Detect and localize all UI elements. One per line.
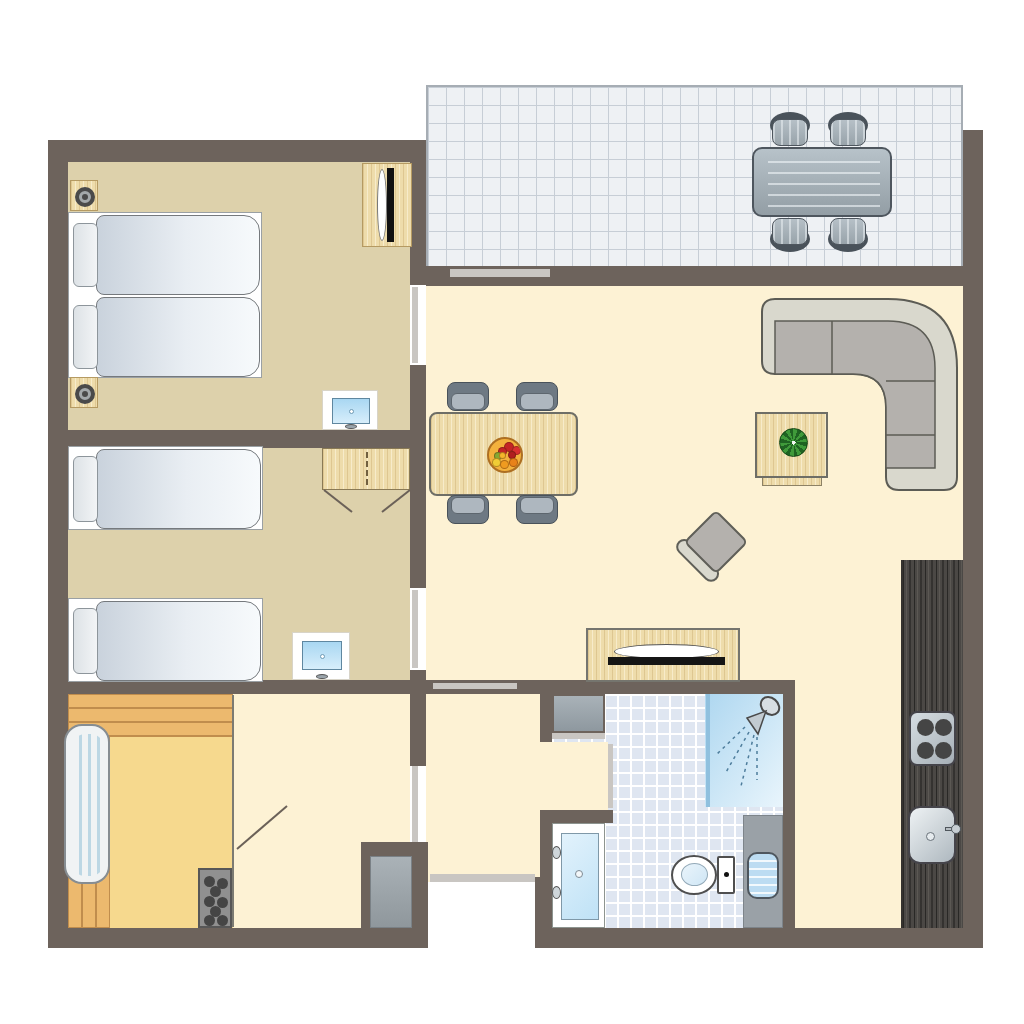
wall-bath-left-upper xyxy=(540,694,552,742)
bathroom-doorway-floor xyxy=(540,742,608,810)
faucet-icon xyxy=(951,824,961,834)
duvet xyxy=(96,297,260,377)
burner-icon xyxy=(917,719,934,736)
fruit xyxy=(499,452,506,459)
chair-seat xyxy=(520,497,554,514)
lamp-icon xyxy=(75,187,95,207)
wall-corridor-upper xyxy=(410,162,426,285)
armchair xyxy=(678,504,754,580)
double-bed xyxy=(68,212,262,378)
door-bedroom-2 xyxy=(412,590,418,668)
nightstand-top xyxy=(70,180,98,211)
dressing-table-mirror xyxy=(362,163,412,247)
burner-icon xyxy=(935,719,952,736)
heater-stone xyxy=(210,886,221,897)
radiator-fins xyxy=(747,852,779,899)
wall-right xyxy=(963,130,983,948)
chair-seat xyxy=(451,393,485,410)
drain-icon xyxy=(575,870,583,878)
terrace-table xyxy=(752,147,892,217)
stove xyxy=(909,711,956,766)
utility-sill xyxy=(552,733,605,739)
duvet xyxy=(96,215,260,295)
tap-icon xyxy=(552,886,561,899)
terrace-chair-4 xyxy=(826,216,870,252)
heater-stone xyxy=(204,915,215,926)
sauna-lounger xyxy=(64,724,110,884)
wall-hall-band xyxy=(48,680,795,694)
tv-screen xyxy=(332,398,370,424)
nightstand-bottom xyxy=(70,377,98,408)
burner-icon xyxy=(935,742,952,759)
terrace-chair-3 xyxy=(768,216,812,252)
wardrobe xyxy=(322,448,410,490)
terrace-chair-2 xyxy=(826,112,870,148)
dining-chair-4 xyxy=(516,495,561,527)
pillow xyxy=(73,608,98,674)
dining-chair-1 xyxy=(447,382,492,414)
entrance-mat xyxy=(370,856,412,928)
chair-seat xyxy=(772,119,808,146)
lounger-slats xyxy=(73,734,103,876)
tap-icon xyxy=(552,846,561,859)
chair-seat xyxy=(451,497,485,514)
dining-chair-3 xyxy=(447,495,492,527)
hall-window-sill xyxy=(433,683,517,689)
toilet xyxy=(671,853,739,897)
shower xyxy=(705,694,783,807)
utility-cabinet xyxy=(552,694,605,733)
lamp-icon xyxy=(75,384,95,404)
chair-seat xyxy=(830,119,866,146)
tv-icon xyxy=(608,657,725,665)
tv-sideboard xyxy=(586,628,740,682)
entrance-threshold xyxy=(430,874,535,882)
wall-bottom-right xyxy=(535,928,983,948)
flush-button-icon xyxy=(724,872,729,877)
tv-bedroom-1 xyxy=(322,390,378,430)
terrace-chair-1 xyxy=(768,112,812,148)
drain-icon xyxy=(926,832,935,841)
mirror-icon xyxy=(387,168,394,242)
tv-stand-foot xyxy=(316,674,328,679)
tv-bedroom-2 xyxy=(292,632,350,680)
chair-seat xyxy=(520,393,554,410)
door-bathroom xyxy=(608,744,613,808)
wall-entrance-right xyxy=(535,877,552,928)
fruit xyxy=(500,460,509,469)
fruit xyxy=(509,458,518,467)
chair-seat xyxy=(830,218,866,245)
fruit-bowl xyxy=(487,437,523,473)
door-bedroom-1 xyxy=(412,287,418,363)
wall-bath-inner-corner xyxy=(547,810,613,823)
wardrobe-divider xyxy=(366,452,368,485)
pillow xyxy=(73,456,98,522)
kitchen-sink xyxy=(908,806,956,864)
chair-seat xyxy=(772,218,808,245)
bathroom-vanity xyxy=(552,823,605,928)
entrance-door-opening xyxy=(428,882,535,948)
bathroom-radiator xyxy=(743,815,783,928)
table-slats xyxy=(768,161,880,207)
wall-top xyxy=(48,140,426,162)
single-bed-2 xyxy=(68,598,263,682)
floor-plan xyxy=(0,0,1024,1024)
single-bed-1 xyxy=(68,446,263,530)
coffee-table xyxy=(755,412,828,478)
heater-stone xyxy=(217,915,228,926)
toilet-seat xyxy=(681,863,708,886)
door-anteroom xyxy=(412,766,418,842)
dining-chair-2 xyxy=(516,382,561,414)
terrace-door-sill xyxy=(450,269,550,277)
tv-screen xyxy=(302,641,342,670)
duvet xyxy=(96,601,261,681)
wall-bathroom-right xyxy=(783,680,795,928)
wall-corridor-mid xyxy=(410,365,426,588)
tv-stand-foot xyxy=(345,424,357,429)
duvet xyxy=(96,449,261,529)
mirror-glass xyxy=(377,169,387,241)
pillow xyxy=(73,223,98,287)
burner-icon xyxy=(917,742,934,759)
sauna-heater xyxy=(198,868,232,928)
plant-icon xyxy=(779,428,808,457)
pillow xyxy=(73,305,98,369)
